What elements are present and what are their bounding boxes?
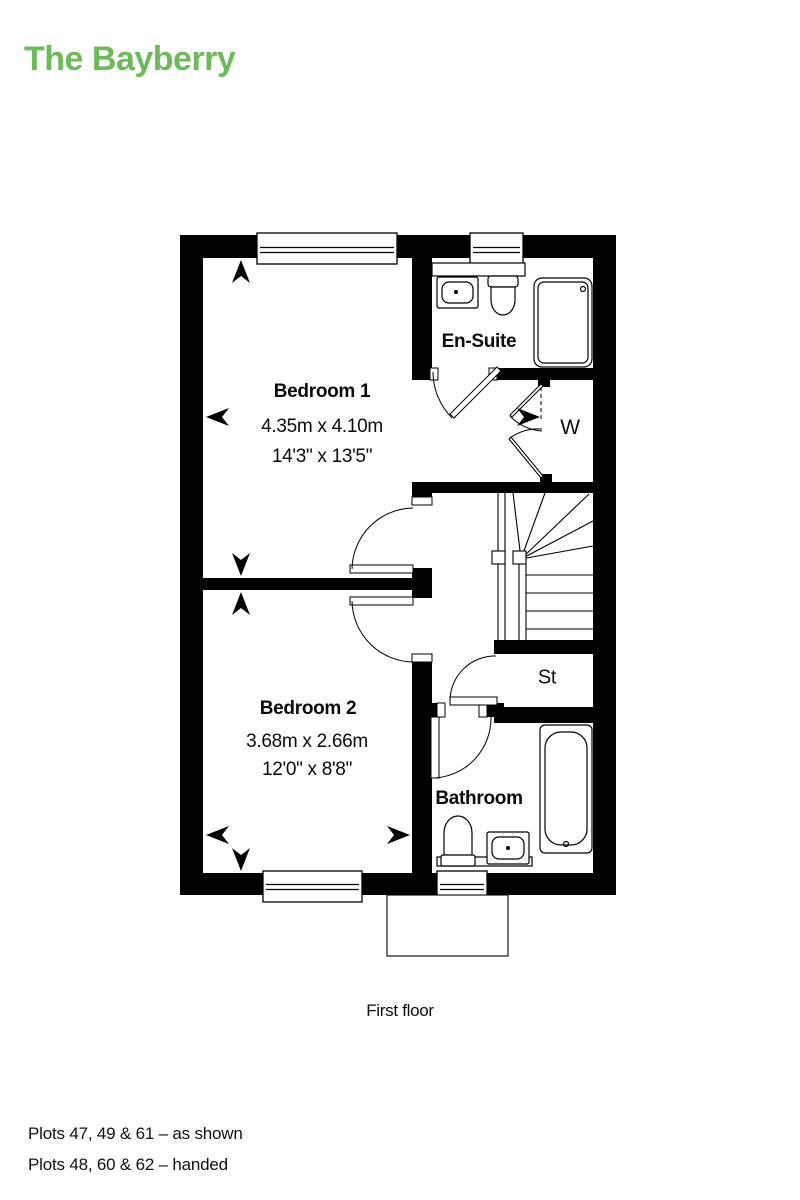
bedroom1-label: Bedroom 1 [274,381,371,403]
arrow-bed1-right [517,408,540,426]
arrow-bed1-left [206,408,229,426]
bedroom1-metric-dimensions: 4.35m x 4.10m [261,416,383,438]
arrow-bed2-up [232,592,250,615]
arrow-bed1-down [232,553,250,576]
window-bedroom2 [263,871,362,902]
wardrobe-label: W [560,416,580,440]
bedroom1-imperial-dimensions: 14'3" x 13'5" [272,446,372,468]
door-store [450,656,497,705]
bedroom2-metric-dimensions: 3.68m x 2.66m [246,731,368,753]
arrow-bed2-down [232,848,250,871]
window-ensuite [470,233,523,264]
arrow-bed2-left [206,826,229,844]
bathtub [540,725,592,853]
window-bedroom1 [257,233,397,264]
door-bedroom2 [350,597,413,662]
ensuite-toilet [488,276,518,315]
store-label: St [538,667,556,690]
arrow-bed1-up [232,260,250,283]
ensuite-shelf [432,263,525,276]
ensuite-sink [437,277,478,308]
bathroom-sink [487,832,529,864]
plots-handed-note: Plots 48, 60 & 62 – handed [28,1155,228,1175]
bedroom2-label: Bedroom 2 [260,698,357,720]
ensuite-label: En-Suite [442,331,517,353]
door-bathroom [431,717,491,778]
door-ensuite [433,367,501,418]
bathroom-toilet [441,816,475,866]
wardrobe-bifold-doors [509,384,543,478]
plots-as-shown-note: Plots 47, 49 & 61 – as shown [28,1124,243,1144]
bathroom-label: Bathroom [435,788,522,810]
door-bedroom1 [350,508,413,573]
ensuite-shower [534,278,592,367]
bedroom2-imperial-dimensions: 12'0" x 8'8" [262,759,352,781]
arrow-bed2-right [387,826,410,844]
stairs [492,493,593,640]
porch-outline [387,895,508,956]
floor-caption: First floor [366,1001,434,1021]
